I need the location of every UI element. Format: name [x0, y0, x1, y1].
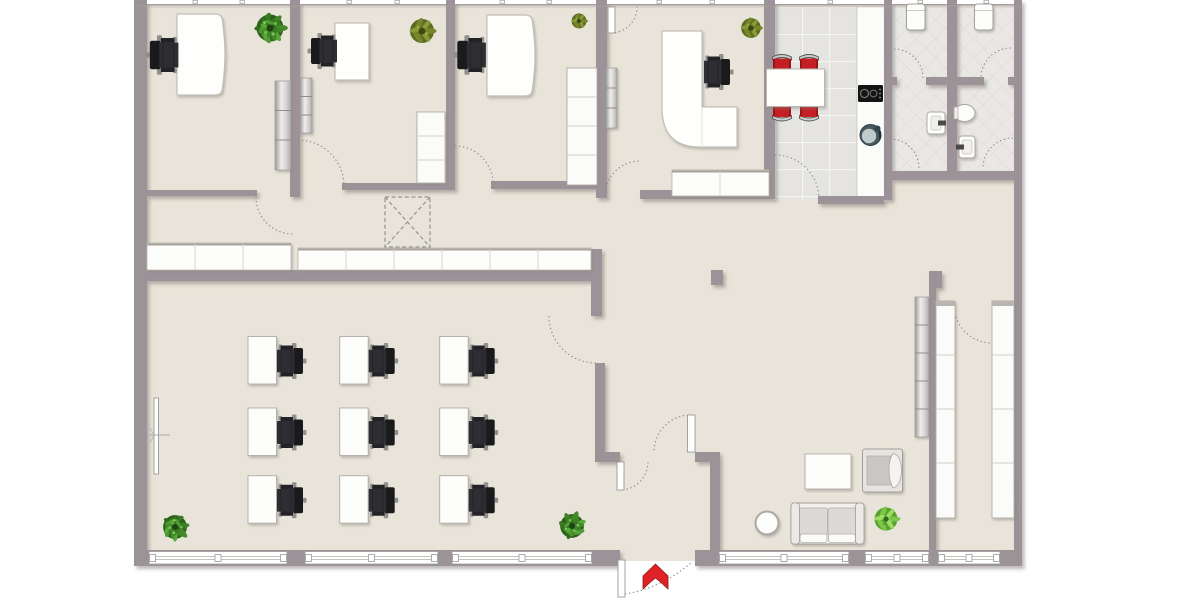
- svg-text:L&S Illustration·InnenGrafik: L&S Illustration·InnenGrafik: [1014, 479, 1020, 547]
